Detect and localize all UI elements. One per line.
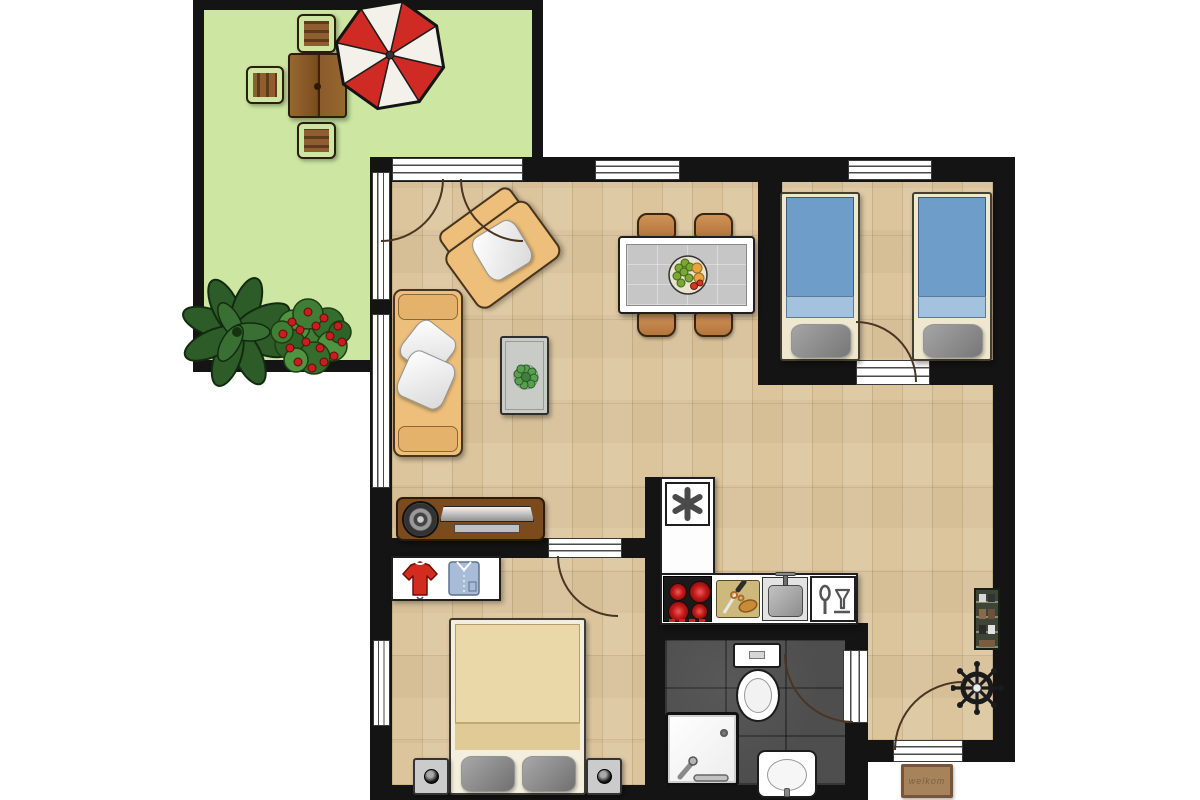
nightstand bbox=[586, 758, 622, 795]
flower-bush-icon bbox=[255, 278, 370, 396]
rack-item bbox=[979, 625, 986, 634]
tv-lowboard bbox=[396, 497, 545, 541]
stove-knobs bbox=[669, 619, 708, 622]
fridge-freezer bbox=[665, 482, 710, 526]
bed-pillow bbox=[461, 756, 515, 792]
faucet-bar bbox=[775, 572, 796, 576]
utensils-icon bbox=[812, 578, 854, 620]
coffee-table bbox=[500, 336, 549, 415]
single-bed bbox=[912, 192, 992, 361]
living-window-left-1 bbox=[372, 172, 390, 300]
entrance-door bbox=[893, 740, 963, 762]
bed-fold bbox=[455, 722, 580, 750]
nightstand-knob bbox=[597, 769, 612, 784]
dining-chair bbox=[694, 213, 733, 238]
terrace-border-right bbox=[532, 0, 543, 160]
terrace-french-door bbox=[392, 158, 523, 181]
living-window-left-2 bbox=[372, 314, 390, 488]
doormat: welkom bbox=[901, 764, 953, 798]
bathroom-sink bbox=[757, 750, 817, 798]
kitchen-sink bbox=[762, 577, 808, 621]
single-bed bbox=[780, 192, 860, 361]
tv-base bbox=[454, 524, 520, 533]
twinbedroom-door bbox=[856, 360, 930, 385]
basin-oval bbox=[767, 759, 807, 791]
wardrobe-clothes bbox=[393, 558, 499, 599]
bed-fold bbox=[786, 296, 854, 318]
wardrobe bbox=[391, 556, 501, 601]
table-plant-icon bbox=[507, 358, 545, 396]
wall-bath-top bbox=[645, 623, 868, 640]
toilet-bowl bbox=[736, 669, 780, 722]
table-knob bbox=[314, 83, 321, 90]
coat-stand-icon bbox=[951, 660, 1005, 716]
nightstand bbox=[413, 758, 449, 795]
doublebedroom-door bbox=[548, 538, 622, 558]
dining-chair bbox=[637, 312, 676, 337]
bed-pillow bbox=[522, 756, 576, 792]
garden-chair bbox=[297, 122, 336, 159]
toilet-tank bbox=[733, 643, 781, 668]
dishwasher bbox=[810, 576, 856, 622]
speaker-icon bbox=[402, 501, 439, 538]
sweater-icon bbox=[403, 562, 437, 595]
freezer-icon bbox=[667, 484, 708, 524]
rack-item bbox=[988, 609, 995, 619]
rack-item bbox=[979, 609, 986, 619]
sofa-armrest bbox=[398, 426, 458, 452]
tv-screen bbox=[440, 506, 534, 522]
shower bbox=[665, 712, 739, 786]
shower-handle-icon bbox=[672, 753, 734, 783]
bed-pillow bbox=[923, 324, 983, 358]
burner bbox=[669, 583, 687, 601]
dining-chair bbox=[637, 213, 676, 238]
double-bed bbox=[449, 618, 586, 795]
bathroom-door bbox=[843, 650, 868, 723]
doormat-label: welkom bbox=[904, 767, 950, 795]
garden-chair bbox=[246, 66, 284, 104]
sofa bbox=[393, 289, 463, 457]
flush-button bbox=[749, 651, 765, 659]
cutting-board bbox=[716, 580, 760, 618]
sink-basin bbox=[768, 585, 803, 617]
fruit-bowl-icon bbox=[666, 253, 710, 297]
doublebedroom-window-left bbox=[373, 640, 390, 726]
cutting-board-items bbox=[717, 581, 761, 619]
stove bbox=[663, 576, 712, 622]
shower-drain bbox=[720, 729, 728, 737]
rack-item bbox=[988, 594, 995, 602]
shoe-rack bbox=[974, 588, 1000, 650]
living-window-top bbox=[595, 160, 680, 180]
dining-chair bbox=[694, 312, 733, 337]
nightstand-knob bbox=[424, 769, 439, 784]
burner bbox=[689, 581, 711, 603]
bed-pillow bbox=[791, 324, 851, 358]
toilet-bowl-inner bbox=[744, 678, 772, 713]
basin-faucet bbox=[784, 788, 790, 797]
burner bbox=[691, 603, 708, 620]
floor-plan: welkom bbox=[0, 0, 1200, 800]
rack-item bbox=[988, 625, 995, 634]
rack-item bbox=[979, 640, 995, 647]
parasol-icon bbox=[330, 0, 452, 116]
twinbedroom-window-top bbox=[848, 160, 932, 180]
rack-item bbox=[979, 594, 986, 602]
bed-fold bbox=[918, 296, 986, 318]
sofa-armrest bbox=[398, 294, 458, 320]
wall-twinbedroom-left bbox=[758, 157, 782, 385]
